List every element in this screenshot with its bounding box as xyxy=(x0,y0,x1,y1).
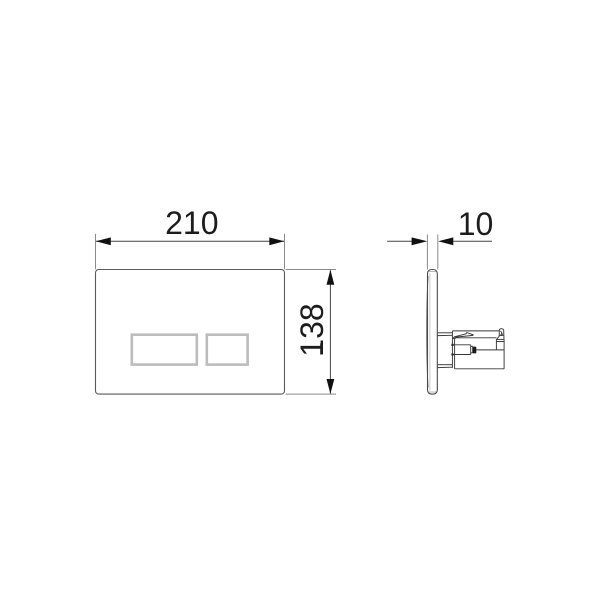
svg-text:210: 210 xyxy=(165,205,218,241)
svg-text:138: 138 xyxy=(294,303,330,356)
svg-text:10: 10 xyxy=(458,206,494,242)
